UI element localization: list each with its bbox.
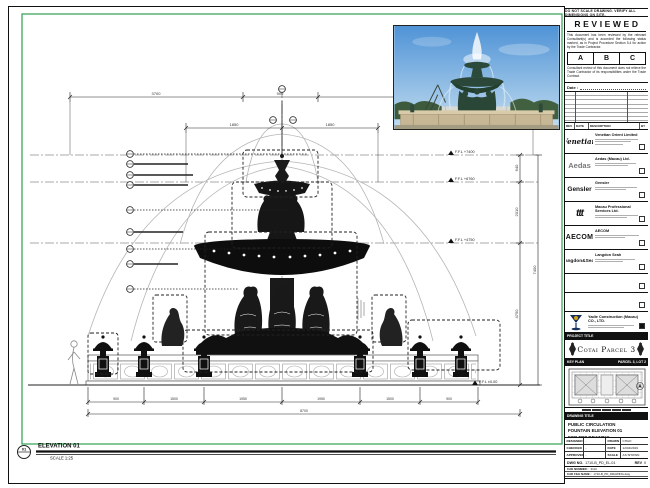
title-block: DO NOT SCALE DRAWING. VERIFY ALL DIMENSI…: [564, 6, 648, 484]
consultant-box: ttt Macau Professional Services Ltd.: [565, 202, 648, 226]
venetian-logo: Venetian: [566, 131, 593, 152]
border-note: DO NOT SCALE DRAWING. VERIFY ALL DIMENSI…: [565, 8, 648, 17]
consultant-box: Gensler Gensler: [565, 178, 648, 202]
review-grades: A B C: [567, 52, 646, 65]
title-block-tail: [565, 479, 648, 484]
checked-value: -: [584, 445, 606, 452]
drawn-value: CHAO: [621, 438, 648, 445]
cad-file-label: CAD FILE NAME :: [567, 472, 591, 476]
side-annotation-marks: [358, 298, 364, 320]
cad-file-value: 1710-B_PD_DRAWING.dwg: [593, 472, 630, 476]
flanking-sculpture-left: [161, 308, 184, 346]
elevation-title: 01 ELEVATION 01 SCALE 1:25: [18, 444, 557, 461]
revision-col-divider: [627, 92, 628, 123]
key-plan: [565, 366, 648, 408]
dimension-label: 1850: [230, 122, 240, 127]
dimension-chain-right: [516, 153, 542, 387]
contractor-name: Yadie Construction (Macau) CO., LTD.: [588, 315, 646, 323]
drawing-title-label: DRAWING TITLE: [567, 414, 594, 418]
fountain-silhouette: [161, 101, 402, 373]
cad-info-rows: CAD NUMBER : 3110 CAD FILE NAME : 1710-B…: [565, 467, 648, 479]
review-stamp-body1: This document has been reviewed by the r…: [567, 33, 646, 50]
designed-value: -: [584, 438, 606, 445]
dwg-value: 1710-B_PD_EL-01: [585, 461, 615, 465]
dimension-label: 1850: [326, 122, 336, 127]
review-checkbox: [639, 144, 645, 150]
rev-value: 0: [644, 461, 646, 465]
checked-label: CHECKED: [565, 445, 584, 452]
banner-ornament-right: [636, 342, 645, 356]
consultant-name: Venetian Orient Limited: [595, 133, 646, 137]
base-volutes: [196, 328, 368, 358]
reference-photo-image: [394, 26, 559, 129]
dimension-label: 1950: [317, 397, 325, 401]
consultant-box: Langdon&Seah Langdon Seah: [565, 250, 648, 274]
dimension-label: 3700: [152, 91, 162, 96]
revision-col-divider: [575, 92, 576, 123]
review-stamp-title: REVIEWED: [567, 18, 646, 32]
empty-consultant-box: [565, 274, 648, 293]
project-strip-label: PROJECT TITLE: [567, 334, 593, 338]
reference-photo: [393, 25, 560, 130]
approved-value: -: [584, 452, 606, 459]
dimension-label: 1500: [386, 397, 394, 401]
project-name: Cotai Parcel 3: [577, 345, 636, 354]
level-label: F.F.L +7400: [455, 150, 475, 154]
top-vase: [274, 160, 290, 183]
project-banner: Cotai Parcel 3: [565, 340, 648, 359]
dwg-label: DWG NO.: [567, 461, 583, 465]
level-label: F.F.L ±0.00: [479, 380, 497, 384]
putti-figures: [257, 191, 304, 232]
consultant-box: AECOM AECOM: [565, 226, 648, 250]
drawing-title: PUBLIC CIRCULATION FOUNTAIN ELEVATION 01…: [565, 420, 648, 438]
dimension-label: 7400: [532, 265, 537, 275]
approved-label: APPROVED: [565, 452, 584, 459]
scale-label: SCALE: [606, 452, 621, 459]
consultant-name: Langdon Seah: [595, 253, 646, 257]
flanking-sculpture-right: [380, 308, 403, 346]
consultant-name: Macau Professional Services Ltd.: [595, 205, 646, 213]
consultant-name: Gensler: [595, 181, 646, 185]
revision-table: REV DATE DESCRIPTION BY: [565, 92, 648, 130]
designed-label: DESIGNED: [565, 438, 584, 445]
review-checkbox: [639, 283, 645, 289]
rev-header: REV: [565, 123, 575, 129]
cad-number-label: CAD NUMBER :: [567, 467, 589, 471]
drawn-label: DRAWN: [606, 438, 621, 445]
review-checkbox: [639, 168, 645, 174]
dimension-label: 640: [514, 164, 519, 171]
elevation-marker: 01: [22, 447, 27, 452]
aedas-logo: Aedas: [566, 155, 593, 176]
grade-c: C: [620, 53, 645, 64]
empty-consultant-box: [565, 293, 648, 312]
scale-figure: [68, 341, 80, 384]
consultant-box: Aedas Aedas (Macau) Ltd.: [565, 154, 648, 178]
cad-number-value: 3110: [591, 467, 597, 471]
langdon-seah-logo: Langdon&Seah: [566, 251, 593, 272]
level-label: F.F.L +6760: [455, 177, 475, 181]
dimension-label: 8700: [300, 409, 308, 413]
scale-value: AS SHOWN: [621, 452, 648, 459]
signoff-table: DESIGNED - DRAWN CHAO CHECKED - DATE 12/…: [565, 438, 648, 459]
consultant-box: Venetian Venetian Orient Limited: [565, 130, 648, 154]
banner-ornament-left: [568, 342, 577, 356]
consultant-name: AECOM: [595, 229, 646, 233]
dwg-number-row: DWG NO. 1710-B_PD_EL-01 REV 0: [565, 459, 648, 467]
review-checkbox: [639, 264, 645, 270]
revision-table-header: REV DATE DESCRIPTION BY: [565, 122, 648, 129]
mps-logo: ttt: [566, 203, 593, 224]
contractor-checkbox: [639, 323, 645, 329]
review-checkbox: [639, 192, 645, 198]
project-title-strip: PROJECT TITLE: [565, 333, 648, 340]
contractor-logo: [566, 313, 586, 331]
dimension-label: 900: [446, 397, 452, 401]
key-plan-label: KEY PLAN: [567, 360, 584, 364]
dimension-label: 900: [113, 397, 119, 401]
review-stamp: REVIEWED This document has been reviewed…: [565, 17, 648, 83]
dimension-label: 1950: [239, 397, 247, 401]
contractor-box: Yadie Construction (Macau) CO., LTD.: [565, 312, 648, 333]
photo-basin-wall: [400, 114, 552, 125]
rev-label: REV: [635, 461, 642, 465]
description-header: DESCRIPTION: [589, 123, 640, 129]
review-checkbox: [639, 302, 645, 308]
gensler-logo: Gensler: [566, 179, 593, 200]
date-blank-line: [580, 84, 646, 89]
key-plan-strip: KEY PLAN PARCEL 3, LOT 2: [565, 359, 648, 366]
stamp-date-row: Date :: [565, 83, 648, 92]
review-checkbox: [639, 216, 645, 222]
date-value: 12/04/2019: [621, 445, 648, 452]
dimension-label: 4750: [514, 309, 519, 319]
review-checkbox: [639, 240, 645, 246]
date-label: DATE: [606, 445, 621, 452]
grade-b: B: [594, 53, 620, 64]
photo-basin-coping: [399, 110, 555, 114]
elevation-scale: SCALE 1:25: [50, 456, 74, 461]
date-header: DATE: [575, 123, 589, 129]
drawing-sheet-page: 3700 900 3700 1850 1850: [0, 0, 650, 488]
consultant-name: Aedas (Macau) Ltd.: [595, 157, 646, 161]
dimension-label: 900: [277, 91, 284, 96]
dimension-label: 1500: [170, 397, 178, 401]
date-label: Date :: [567, 85, 578, 90]
by-header: BY: [640, 123, 648, 129]
aecom-logo: AECOM: [566, 227, 593, 248]
drawing-title-strip: DRAWING TITLE: [565, 413, 648, 420]
key-plan-right-label: PARCEL 3, LOT 2: [618, 360, 646, 364]
grade-a: A: [568, 53, 594, 64]
review-stamp-body2: Consultant review of this document does …: [567, 66, 646, 78]
elevation-label: ELEVATION 01: [38, 444, 80, 450]
level-label: F.F.L +4750: [455, 238, 475, 242]
dimension-label: 2010: [514, 207, 519, 217]
